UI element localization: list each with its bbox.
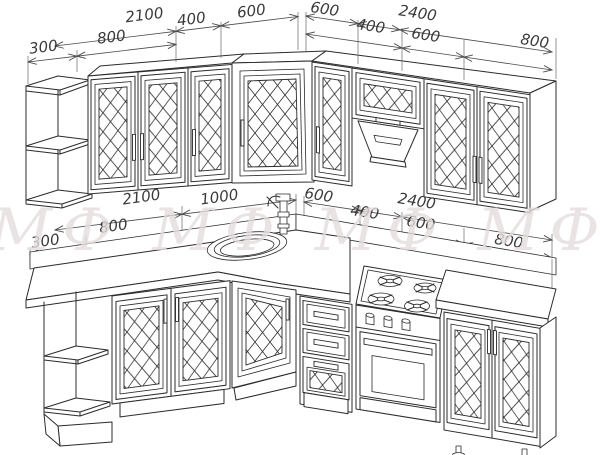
cabinet-foot [453, 446, 465, 455]
door-handle [494, 330, 497, 355]
dim-label-upper-800: 800 [96, 26, 127, 47]
upper-door-lattice [91, 76, 135, 190]
dim-label-upper-600: 600 [236, 0, 267, 21]
cabinet-foot [519, 449, 531, 455]
base-door-lattice [447, 319, 489, 430]
dim-label-upper-800r: 800 [519, 30, 550, 52]
door-handle [164, 299, 167, 323]
dim-label-upper-total-right: 2400 [398, 1, 438, 25]
dim-label-upper-600b: 600 [410, 24, 441, 46]
dim-label-upper-300: 300 [28, 36, 59, 57]
upper-run-side-panel [530, 81, 556, 211]
base-corner-open-shelf [44, 292, 112, 446]
base-cabinet-800-left [112, 281, 230, 418]
door-handle [176, 297, 179, 321]
base-corner-cabinet [232, 281, 296, 400]
door-handle [488, 329, 491, 354]
oven-front [356, 305, 440, 422]
door-handle [133, 134, 136, 160]
stove-knob [384, 315, 392, 327]
upper-door-lattice [427, 83, 474, 200]
watermark-text: МФ МФ МФ МФ [0, 196, 600, 264]
upper-corner-cabinet [232, 61, 314, 183]
upper-door-lattice [141, 72, 185, 186]
kitchen-drawing-canvas: 2100 300 800 400 600 2400 600 400 600 80… [0, 0, 600, 455]
drawer-unit [300, 296, 352, 414]
door-handle [473, 156, 476, 182]
stove [356, 266, 448, 422]
burner [378, 276, 402, 287]
stove-knob [402, 318, 410, 330]
range-hood [358, 121, 418, 169]
door-handle [241, 120, 244, 146]
upper-cabinets [26, 51, 556, 213]
upper-door-lattice [480, 91, 527, 208]
upper-corner-open-shelf [26, 76, 92, 208]
stove-knob [366, 313, 374, 325]
dim-label-upper-400r: 400 [355, 15, 386, 37]
door-handle [193, 129, 196, 155]
door-handle [317, 127, 320, 153]
kitchen-line-drawing: 2100 300 800 400 600 2400 600 400 600 80… [0, 0, 600, 455]
base-door-lattice [175, 287, 226, 392]
burner [414, 283, 436, 293]
door-handle [141, 134, 144, 160]
base-door-lattice [116, 295, 167, 400]
dim-label-upper-total-left: 2100 [124, 4, 164, 27]
plinth [44, 414, 112, 446]
door-handle [286, 299, 289, 320]
upper-door-lattice [315, 66, 349, 181]
base-cabinet-800-right [436, 270, 556, 455]
cabinet-front [444, 312, 540, 446]
door-handle [479, 157, 482, 183]
burner [368, 293, 394, 305]
upper-left-run [88, 64, 232, 194]
upper-door-lattice [191, 69, 229, 182]
burner [405, 300, 430, 312]
base-door-lattice [495, 327, 537, 438]
cabinet-side-panel [540, 317, 556, 448]
dim-label-upper-400: 400 [176, 8, 207, 29]
